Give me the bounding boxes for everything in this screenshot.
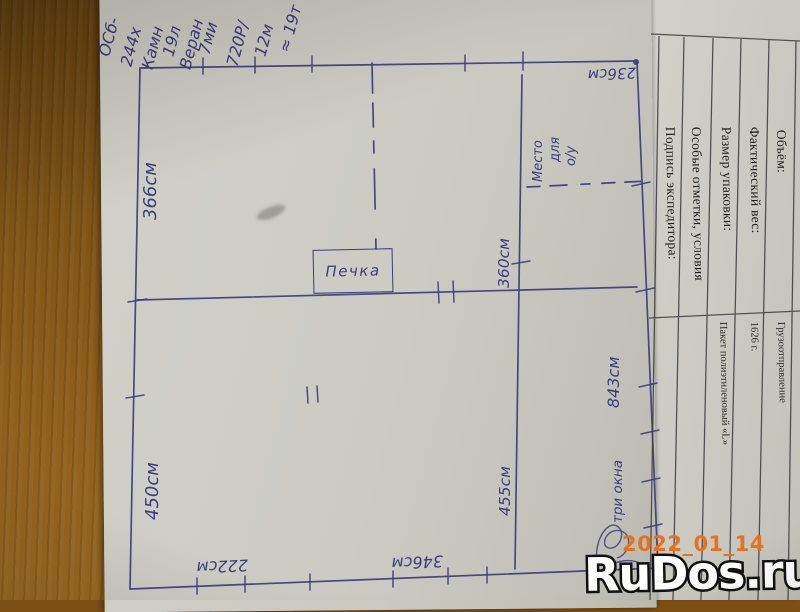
wall-top (140, 61, 637, 68)
form-line-6 (788, 41, 796, 600)
form-line-5 (758, 40, 769, 600)
partition-dashed-top (372, 63, 376, 249)
wall-left (130, 68, 140, 589)
wall-vertical-right-rooms (515, 75, 522, 569)
corner-ink-dot (633, 59, 639, 65)
linework-svg: 2022_01_14 RuDos.ru (0, 0, 800, 600)
plan-walls (130, 61, 658, 589)
form-grid-lines (649, 34, 800, 600)
form-line-3 (701, 38, 713, 600)
wall-bottom (130, 568, 658, 589)
form-line-4 (729, 39, 741, 600)
form-line-2 (673, 37, 684, 600)
partition-dashed-place (527, 181, 648, 187)
form-row-divider (649, 311, 800, 318)
watermark-site: RuDos.ru (584, 544, 800, 600)
ticks-left-wall (126, 299, 147, 398)
ticks-right-wall (632, 182, 662, 528)
plan-tick-marks (126, 52, 662, 594)
photo-floor-plan-sketch: { "plan": { "stove": "Печка", "dim_top_l… (0, 0, 800, 600)
tick-partition (512, 261, 530, 264)
wall-middle (137, 287, 637, 300)
watermark: 2022_01_14 RuDos.ru (584, 532, 800, 600)
room-center-ticks (307, 386, 318, 403)
form-border-top (651, 34, 800, 41)
